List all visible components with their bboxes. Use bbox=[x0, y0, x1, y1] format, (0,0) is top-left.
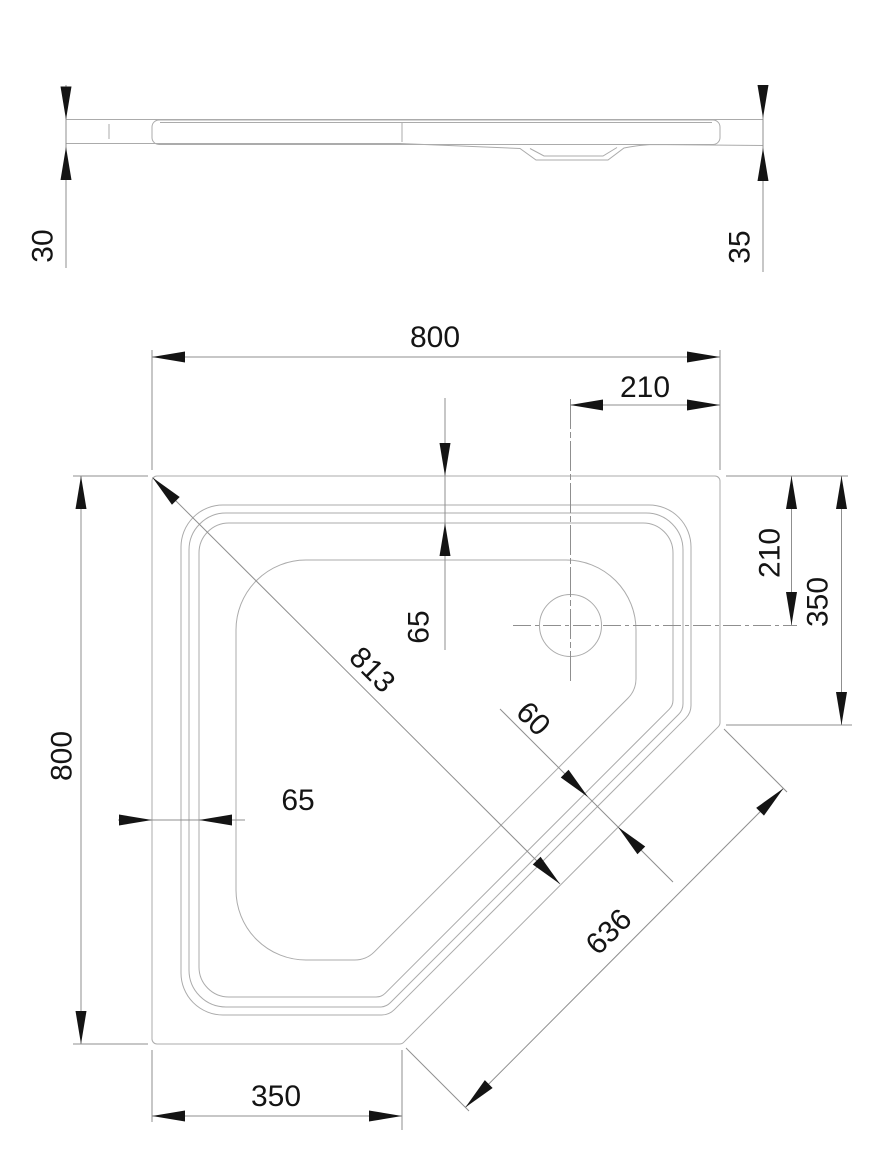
extension-line bbox=[406, 1048, 469, 1111]
profile-drain-recess-inner bbox=[530, 148, 617, 157]
dim-label-diagonal-corner: 813 bbox=[343, 641, 402, 700]
profile-slab-outline bbox=[152, 120, 720, 145]
technical-drawing: 30 35 800 210 bbox=[0, 0, 881, 1166]
dimension-arrowhead bbox=[533, 857, 560, 884]
extension-line bbox=[724, 729, 787, 792]
dimension-arrowhead bbox=[152, 1111, 185, 1122]
dimension-arrowhead bbox=[76, 1011, 87, 1044]
dimension-arrowhead bbox=[570, 400, 603, 411]
dimension-arrowhead bbox=[687, 400, 720, 411]
dimension-arrowhead bbox=[61, 87, 72, 120]
dimension-arrowhead bbox=[687, 352, 720, 363]
dimension-arrowhead bbox=[61, 147, 72, 180]
profile-bottom-edge bbox=[66, 144, 763, 161]
dim-label-top-width: 800 bbox=[410, 321, 460, 354]
plan-dimensions: 800 210 210 350 800 bbox=[46, 321, 853, 1130]
dim-label-right-upper: 210 bbox=[754, 528, 787, 578]
plan-view bbox=[152, 399, 797, 1044]
dim-edge-inset-top: 65 bbox=[403, 398, 446, 650]
side-profile-view: 30 35 bbox=[27, 85, 764, 272]
dimension-arrowhead bbox=[152, 352, 185, 363]
dimension-arrowhead bbox=[440, 523, 451, 556]
dim-top-right-offset: 210 bbox=[570, 371, 720, 405]
dim-label-left-height: 800 bbox=[46, 731, 79, 781]
dim-label-profile-left: 30 bbox=[27, 229, 60, 262]
dimension-arrowhead bbox=[618, 827, 645, 854]
dim-edge-inset-left: 65 bbox=[118, 784, 315, 820]
dim-bottom-width: 350 bbox=[152, 1050, 402, 1130]
dimension-arrowhead bbox=[561, 770, 588, 797]
dimension-arrowhead bbox=[369, 1111, 402, 1122]
dimension-line bbox=[153, 478, 561, 885]
dim-label-diagonal-rim: 60 bbox=[510, 696, 557, 743]
dimension-arrowhead bbox=[199, 815, 232, 826]
dim-diagonal-rim: 60 bbox=[500, 696, 673, 882]
dim-label-edge-inset-left: 65 bbox=[281, 784, 314, 817]
dimension-arrowhead bbox=[786, 476, 797, 509]
dimension-arrowhead bbox=[440, 443, 451, 476]
dimension-arrowhead bbox=[758, 85, 769, 118]
dim-label-diagonal-edge: 636 bbox=[580, 903, 639, 962]
dim-left-height: 800 bbox=[46, 476, 149, 1044]
dim-label-profile-right: 35 bbox=[724, 230, 757, 263]
dim-diagonal-edge: 636 bbox=[406, 729, 787, 1111]
dimension-arrowhead bbox=[786, 592, 797, 625]
dim-label-right-full: 350 bbox=[802, 577, 835, 627]
dim-profile-right-height: 35 bbox=[724, 85, 764, 272]
dim-label-top-right-offset: 210 bbox=[620, 371, 670, 404]
dimension-arrowhead bbox=[465, 1080, 492, 1107]
dim-label-edge-inset-top: 65 bbox=[403, 610, 436, 643]
drawing-sheet: 30 35 800 210 bbox=[0, 0, 881, 1166]
dim-label-bottom-width: 350 bbox=[251, 1080, 301, 1113]
dimension-line bbox=[465, 788, 783, 1107]
dimension-arrowhead bbox=[153, 478, 180, 505]
dimension-arrowhead bbox=[836, 692, 847, 725]
dim-profile-left-height: 30 bbox=[27, 85, 67, 268]
dimension-arrowhead bbox=[756, 788, 783, 815]
dim-diagonal-corner: 813 bbox=[153, 478, 561, 885]
dimension-arrowhead bbox=[76, 476, 87, 509]
dimension-arrowhead bbox=[119, 815, 152, 826]
dimension-arrowhead bbox=[758, 148, 769, 181]
dimension-arrowhead bbox=[836, 476, 847, 509]
